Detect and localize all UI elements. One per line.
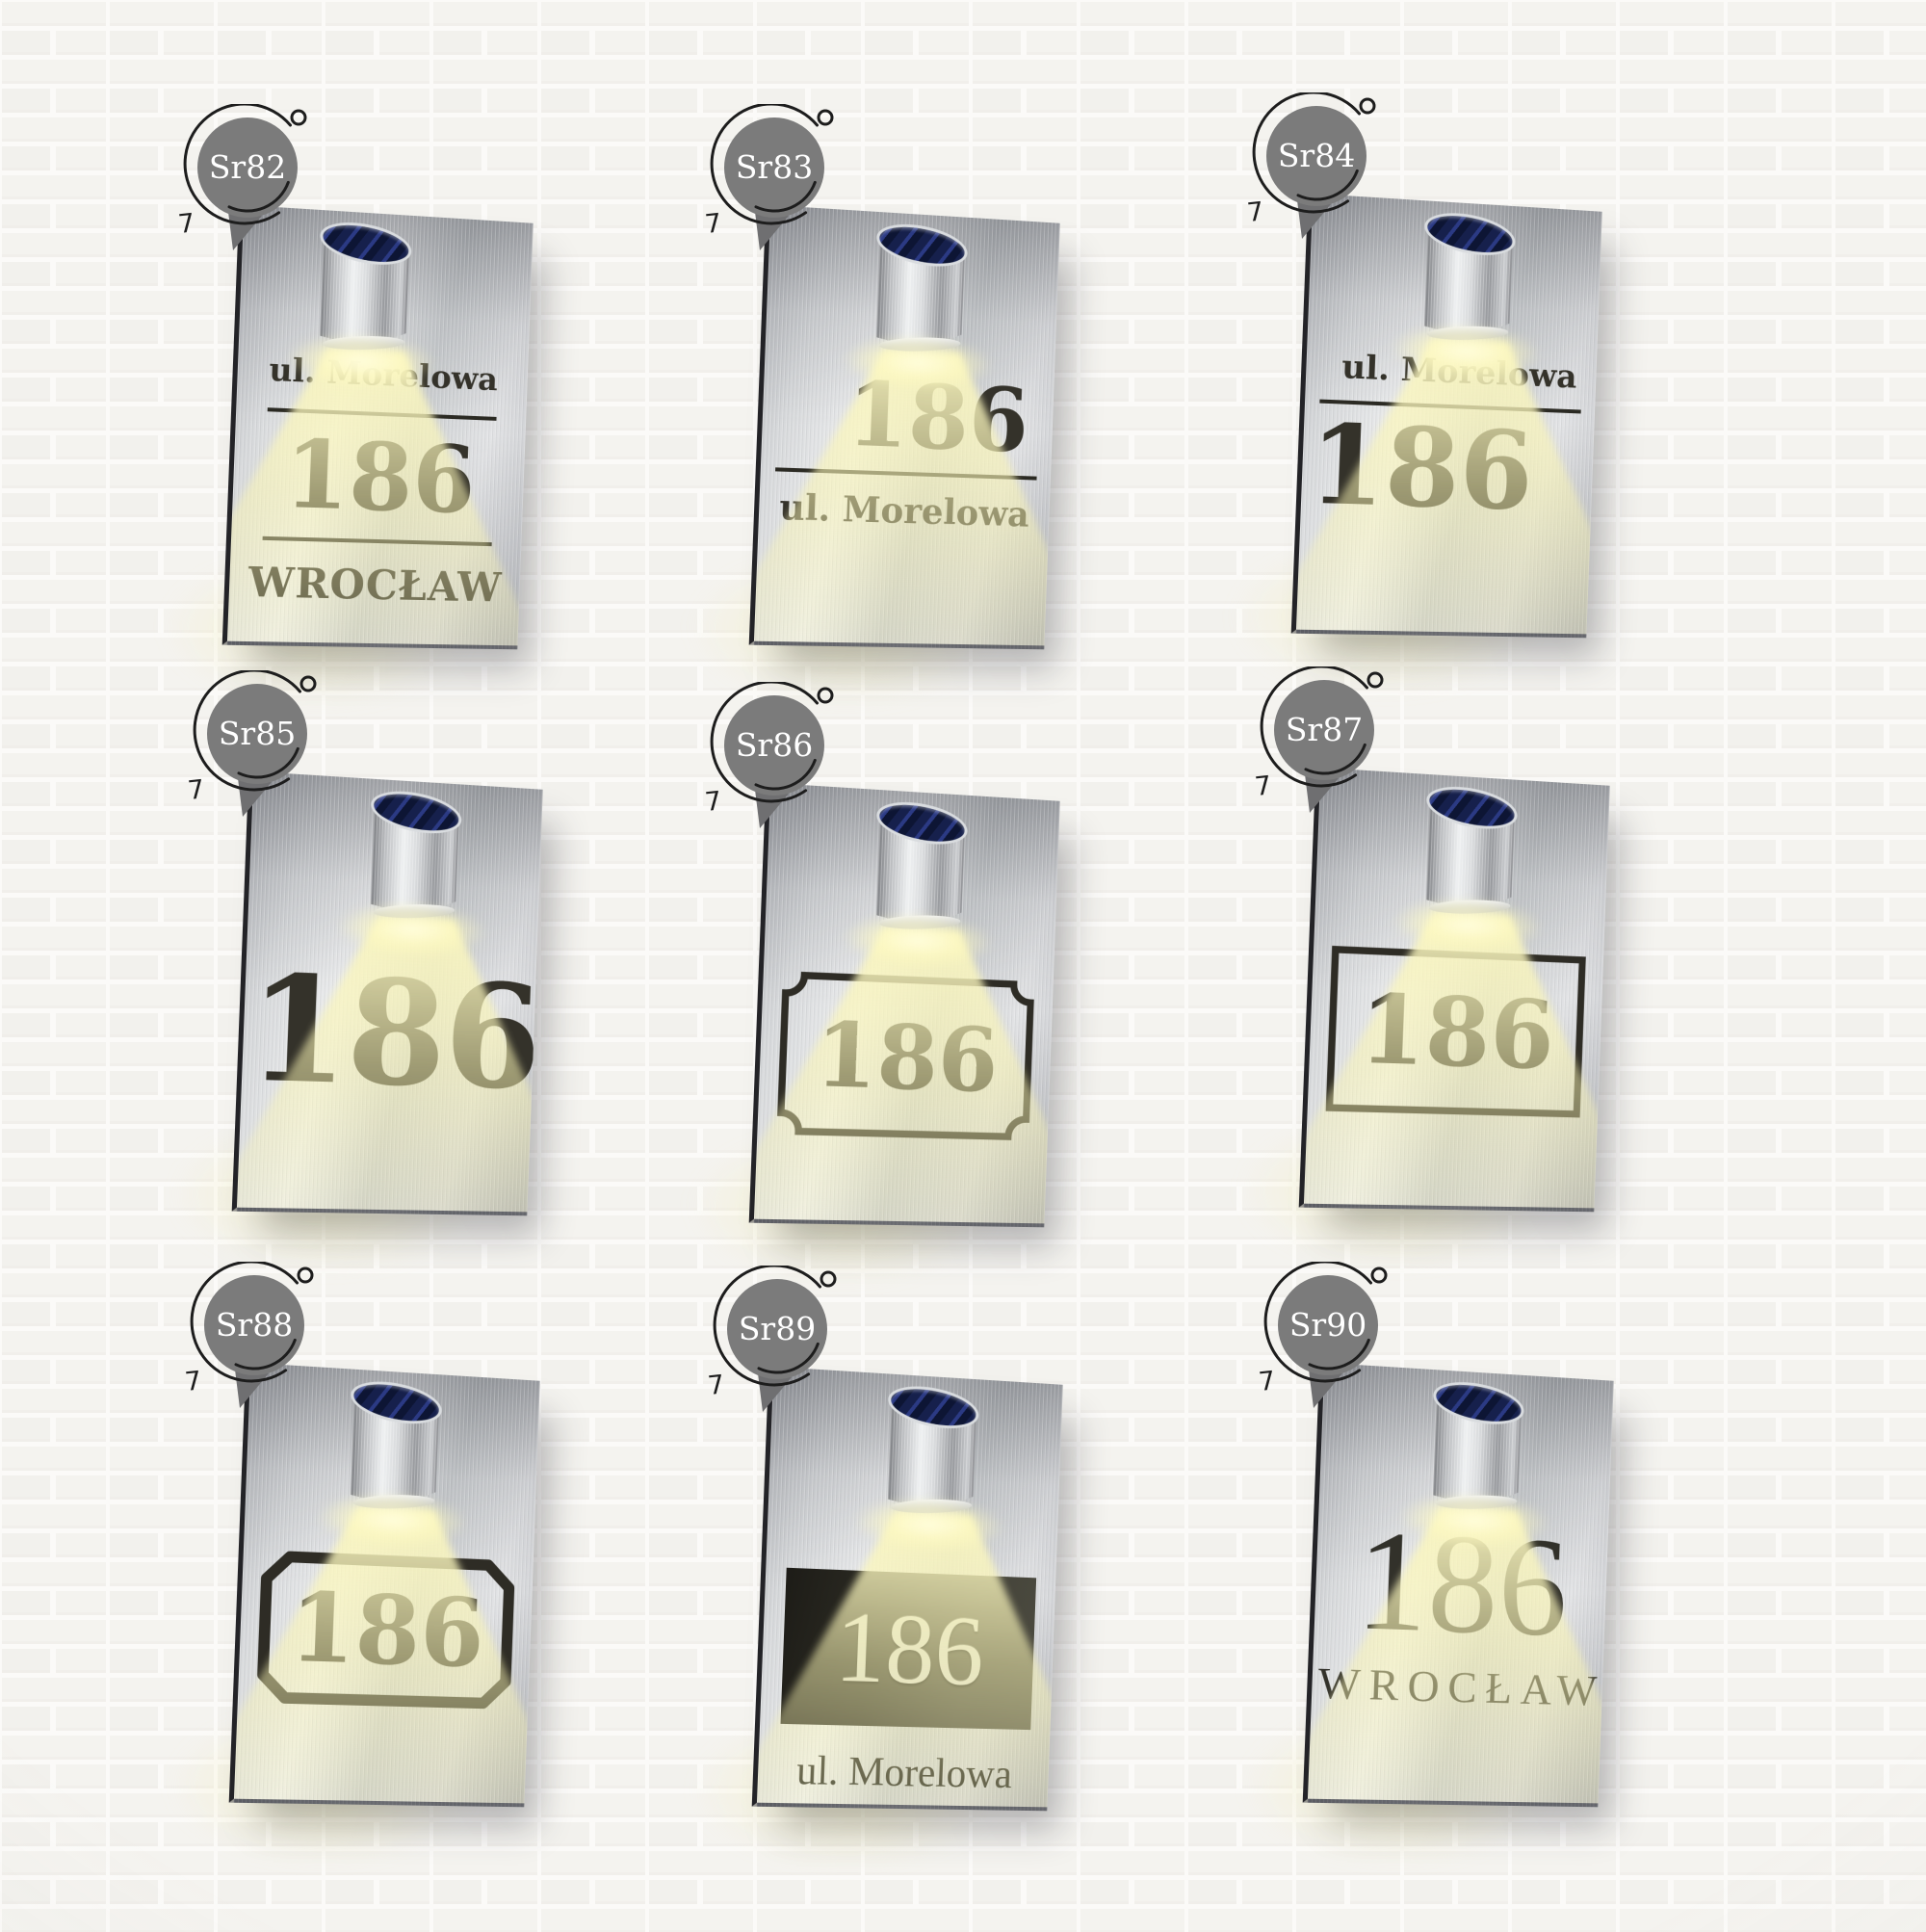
street-name: ul. Morelowa	[773, 487, 1036, 535]
solar-lamp	[1427, 1379, 1527, 1519]
product-card-sr82: ul. Morelowa 186 WROCŁAW 7 Sr82	[231, 214, 530, 647]
variant-badge: 7 Sr82	[175, 104, 320, 258]
plaque-text-block: 186	[252, 1547, 519, 1714]
badge-tail	[228, 212, 262, 250]
city-name: WROCŁAW	[1308, 1657, 1605, 1716]
address-plaque: 186	[1299, 768, 1610, 1213]
address-plaque: ul. Morelowa 186 WROCŁAW	[222, 205, 534, 650]
address-plaque: 186	[232, 771, 543, 1216]
product-card-sr88: 186 7 Sr88	[238, 1371, 536, 1805]
variant-badge: 7 Sr89	[705, 1266, 849, 1420]
solar-lamp	[882, 1383, 982, 1523]
badge-scribble-icon: 7	[1257, 1366, 1276, 1397]
address-plaque: 186 ul. Morelowa	[752, 1367, 1063, 1812]
address-plaque: 186 ul. Morelowa	[749, 205, 1060, 650]
product-card-sr85: 186 7 Sr85	[241, 780, 539, 1214]
product-card-sr90: 186 WROCŁAW 7 Sr90	[1312, 1371, 1610, 1805]
badge-dot-icon	[292, 111, 305, 124]
badge-label: Sr82	[209, 148, 286, 186]
chamfered-frame: 186	[252, 1547, 519, 1714]
plaque-text-block: 186	[256, 964, 522, 1103]
house-number: 186	[834, 1597, 986, 1702]
variant-badge: 7 Sr84	[1244, 92, 1389, 247]
address-plaque: ul. Morelowa 186	[1291, 194, 1602, 639]
product-card-sr87: 186 7 Sr87	[1308, 776, 1606, 1210]
badge-label: Sr83	[736, 148, 813, 186]
divider-line	[267, 407, 496, 421]
house-number: 186	[246, 963, 522, 1103]
product-card-sr86: 186 7 Sr86	[758, 792, 1056, 1225]
badge-label: Sr88	[216, 1306, 293, 1344]
badge-scribble-icon: 7	[1253, 770, 1272, 802]
number-background-box: 186	[780, 1568, 1036, 1730]
badge-scribble-icon: 7	[706, 1370, 725, 1401]
house-number: 186	[1308, 417, 1580, 523]
plaque-text-block: 186 ul. Morelowa	[773, 371, 1040, 535]
solar-lamp	[871, 799, 971, 939]
product-card-sr84: ul. Morelowa 186 7 Sr84	[1300, 202, 1599, 636]
city-name: WROCŁAW	[247, 559, 503, 612]
badge-scribble-icon: 7	[186, 774, 205, 806]
street-name: ul. Morelowa	[795, 1748, 1012, 1798]
variant-badge: 7 Sr86	[702, 682, 846, 836]
plaque-text-block: ul. Morelowa 186 WROCŁAW	[244, 350, 514, 612]
badge-label: Sr86	[736, 726, 813, 764]
solar-lamp	[314, 220, 414, 359]
badge-label: Sr85	[219, 715, 296, 752]
product-card-sr89: 186 ul. Morelowa 7 Sr89	[761, 1375, 1059, 1809]
solar-lamp	[365, 789, 464, 928]
badge-scribble-icon: 7	[183, 1366, 202, 1397]
badge-scribble-icon: 7	[176, 208, 195, 240]
address-plaque: 186	[229, 1363, 540, 1808]
badge-scribble-icon: 7	[703, 208, 722, 240]
solar-lamp	[1418, 210, 1519, 350]
divider-line	[262, 535, 492, 545]
badge-label: Sr84	[1278, 137, 1355, 174]
house-number: 186	[283, 431, 477, 523]
house-number: 186	[252, 1547, 519, 1714]
solar-lamp	[1420, 784, 1521, 924]
address-plaque: 186	[749, 783, 1060, 1228]
ticket-frame: 186	[772, 967, 1040, 1146]
house-number: 186	[772, 967, 1040, 1146]
plaque-text-block: 186	[772, 967, 1040, 1146]
plaque-text-block: 186	[1322, 943, 1590, 1122]
badge-scribble-icon: 7	[1245, 196, 1264, 228]
variant-badge: 7 Sr85	[185, 670, 329, 824]
badge-label: Sr90	[1289, 1306, 1366, 1344]
badge-label: Sr89	[739, 1310, 816, 1347]
badge-label: Sr87	[1286, 711, 1363, 748]
plaque-text-block: 186 ul. Morelowa	[772, 1568, 1042, 1799]
variant-badge: 7 Sr88	[182, 1262, 326, 1416]
variant-badge: 7 Sr83	[702, 104, 846, 258]
house-number: 186	[1322, 943, 1590, 1122]
variant-badge: 7 Sr87	[1252, 666, 1396, 821]
solar-lamp	[345, 1378, 445, 1518]
variant-badge: 7 Sr90	[1256, 1262, 1400, 1416]
address-plaque: 186 WROCŁAW	[1303, 1363, 1614, 1808]
product-collage-root: ul. Morelowa 186 WROCŁAW 7 Sr82	[0, 0, 1926, 1932]
product-card-sr83: 186 ul. Morelowa 7 Sr83	[758, 214, 1056, 647]
badge-scribble-icon: 7	[703, 786, 722, 818]
rectangle-frame: 186	[1322, 943, 1590, 1122]
solar-lamp	[871, 222, 971, 361]
